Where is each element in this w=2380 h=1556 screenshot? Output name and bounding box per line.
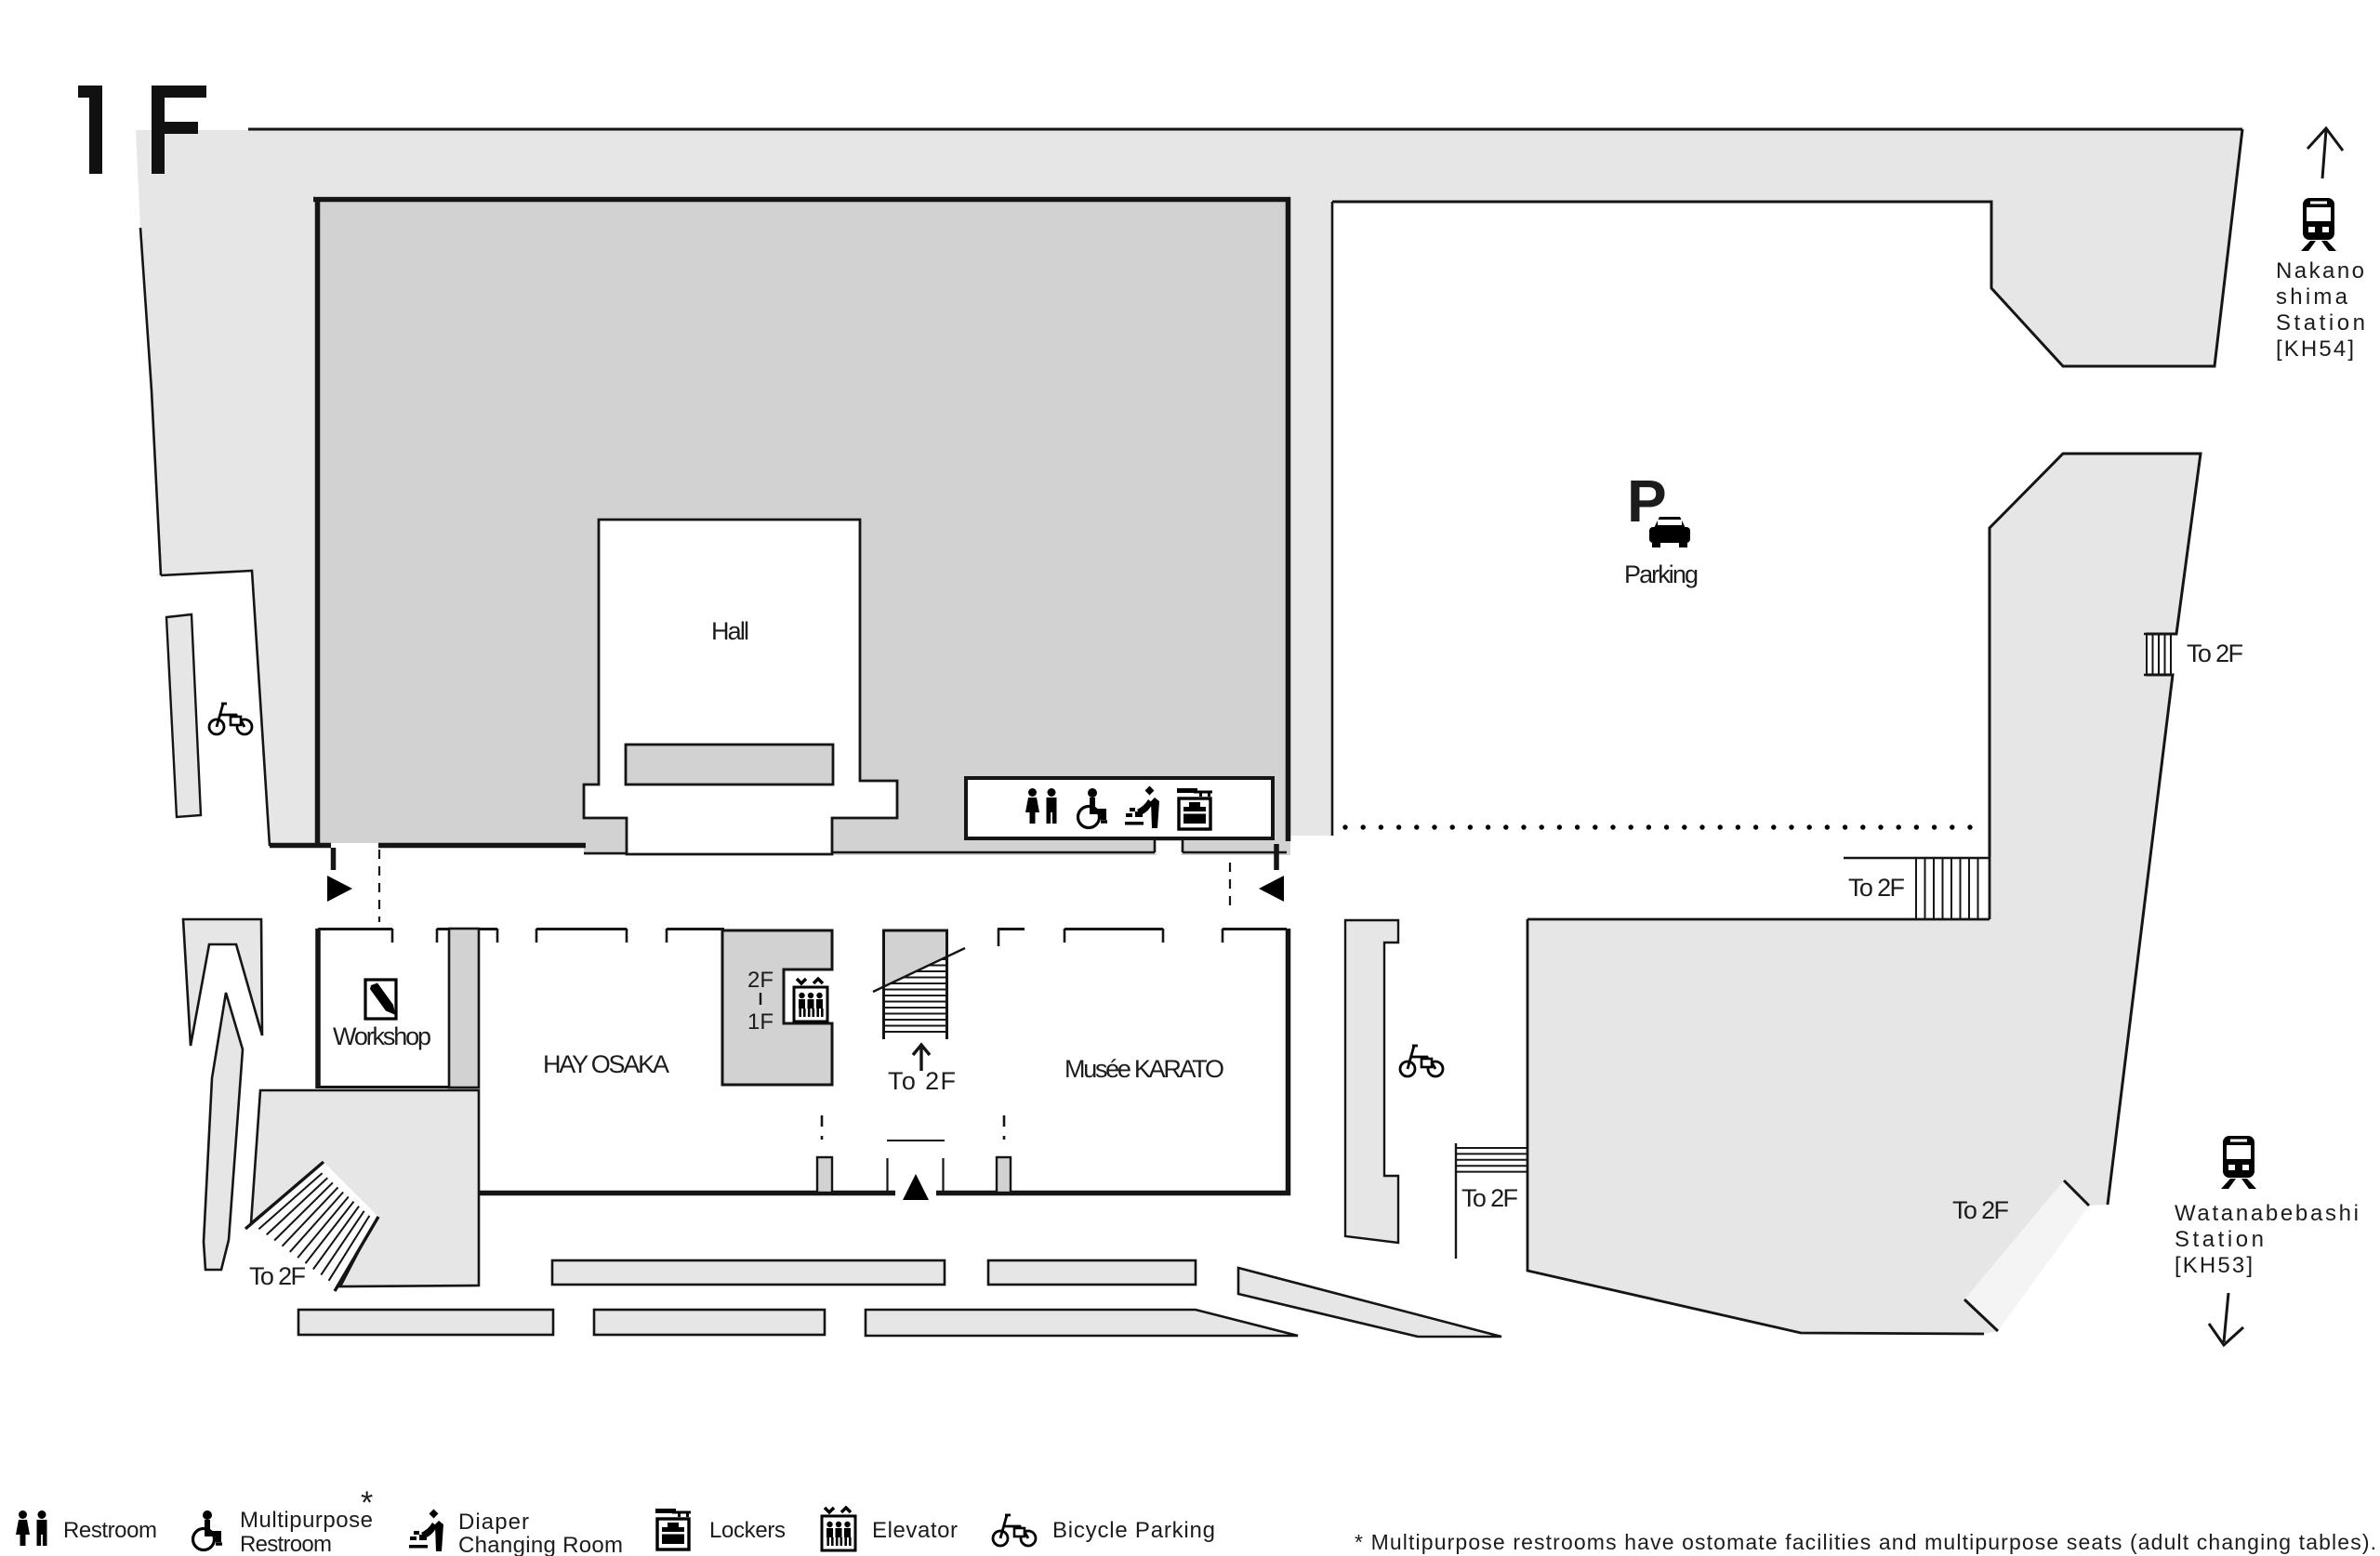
svg-text:To 2F: To 2F xyxy=(1952,1196,2010,1224)
svg-text:To 2F: To 2F xyxy=(249,1262,307,1290)
svg-text:Lockers: Lockers xyxy=(709,1518,786,1543)
svg-text:[KH54]: [KH54] xyxy=(2276,336,2354,362)
svg-text:Elevator: Elevator xyxy=(872,1518,958,1543)
svg-text:Changing Room: Changing Room xyxy=(458,1533,623,1556)
svg-text:Parking: Parking xyxy=(1624,560,1699,588)
svg-text:To 2F: To 2F xyxy=(1848,874,1906,902)
svg-text:Bicycle Parking: Bicycle Parking xyxy=(1052,1518,1215,1543)
svg-text:Musée KARATO: Musée KARATO xyxy=(1064,1055,1225,1083)
svg-text:HAY OSAKA: HAY OSAKA xyxy=(543,1050,670,1078)
svg-text:Workshop: Workshop xyxy=(333,1022,432,1050)
svg-text:Hall: Hall xyxy=(711,617,750,645)
svg-text:Restroom: Restroom xyxy=(63,1518,157,1543)
svg-text:To 2F: To 2F xyxy=(2187,640,2244,667)
svg-text:2F: 2F xyxy=(747,968,773,993)
svg-text:Watanabebashi: Watanabebashi xyxy=(2175,1201,2359,1226)
svg-text:Restroom: Restroom xyxy=(240,1532,332,1556)
svg-text:* Multipurpose restrooms have: * Multipurpose restrooms have ostomate f… xyxy=(1355,1530,2376,1554)
svg-text:[KH53]: [KH53] xyxy=(2175,1253,2253,1278)
svg-text:1F: 1F xyxy=(747,1009,773,1035)
svg-text:Multipurpose: Multipurpose xyxy=(240,1508,373,1533)
svg-text:Nakano: Nakano xyxy=(2276,258,2364,284)
svg-text:To 2F: To 2F xyxy=(888,1067,957,1095)
svg-text:Diaper: Diaper xyxy=(458,1510,529,1535)
svg-text:*: * xyxy=(361,1485,373,1521)
svg-text:To 2F: To 2F xyxy=(1461,1184,1519,1212)
